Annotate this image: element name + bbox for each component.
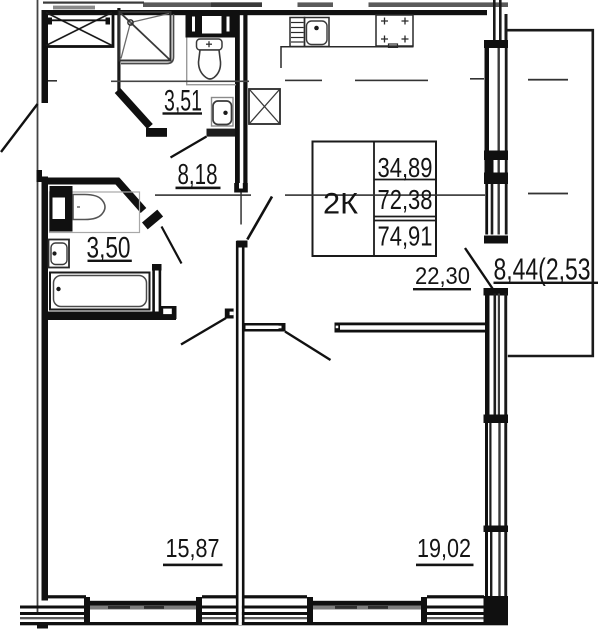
svg-text:72,38: 72,38 (378, 184, 433, 215)
svg-text:3,50: 3,50 (87, 232, 131, 265)
svg-text:2К: 2К (323, 188, 359, 221)
svg-text:8,44(2,53: 8,44(2,53 (494, 252, 591, 287)
svg-text:15,87: 15,87 (166, 533, 220, 563)
svg-text:22,30: 22,30 (415, 263, 470, 290)
svg-text:8,18: 8,18 (178, 159, 218, 191)
svg-text:34,89: 34,89 (378, 152, 433, 183)
svg-text:19,02: 19,02 (417, 533, 471, 563)
svg-text:74,91: 74,91 (378, 221, 433, 252)
